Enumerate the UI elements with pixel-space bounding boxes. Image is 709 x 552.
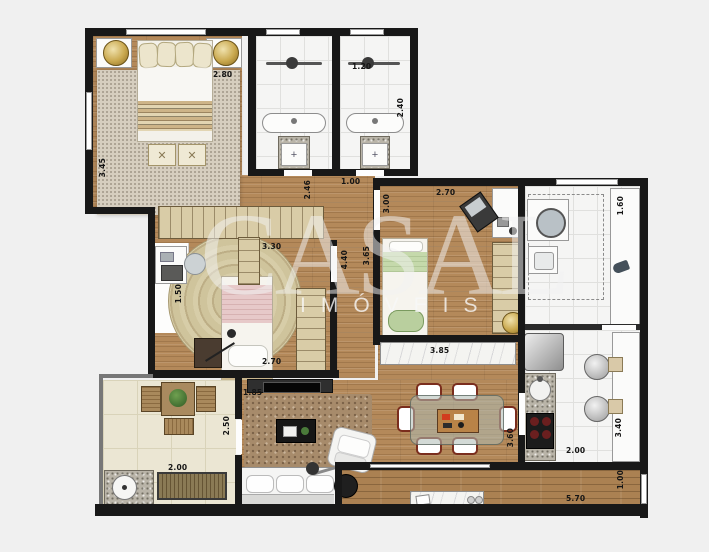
wall-balcony-divider-top bbox=[235, 377, 242, 419]
bedside-table bbox=[194, 338, 222, 368]
window-living-terrace bbox=[370, 464, 490, 468]
bar-counter bbox=[612, 332, 640, 462]
wall-balcony-divider-bottom bbox=[235, 455, 242, 510]
balcony-glass-left bbox=[99, 377, 103, 510]
coffee-table bbox=[276, 419, 316, 443]
dim-terrace-depth: 1.00 bbox=[616, 470, 625, 489]
door-bathroom2 bbox=[356, 170, 384, 176]
wall-bedroom3-bottom bbox=[373, 335, 520, 342]
faucet-icon bbox=[372, 118, 378, 124]
place-setting-icon bbox=[608, 357, 623, 372]
faucet-icon bbox=[291, 118, 297, 124]
tray-item bbox=[458, 422, 464, 428]
burner-icon bbox=[530, 417, 539, 426]
door-balcony bbox=[236, 420, 242, 454]
washer-door-icon bbox=[536, 208, 566, 238]
dim-hall-width: 1.00 bbox=[341, 177, 360, 186]
window-bathroom1 bbox=[266, 29, 300, 35]
bed-blanket bbox=[222, 285, 272, 323]
sofa-pillow bbox=[246, 475, 274, 493]
desk-item bbox=[161, 265, 183, 281]
dim-kitchen-depth: 3.40 bbox=[614, 418, 623, 437]
place-setting-icon bbox=[608, 399, 623, 414]
kitchen-sink bbox=[529, 379, 551, 401]
bar-stool bbox=[584, 396, 610, 422]
magazine-icon bbox=[283, 426, 297, 437]
bed-pillow bbox=[174, 42, 194, 68]
door-bedroom2 bbox=[331, 246, 337, 282]
laundry-sink bbox=[528, 246, 558, 274]
balcony-chair bbox=[141, 386, 161, 412]
dim-bath-width: 1.20 bbox=[352, 62, 371, 71]
terrace-deck bbox=[340, 468, 640, 506]
wall-bedroom2-bottom bbox=[148, 370, 339, 378]
bed-pillow bbox=[156, 42, 176, 68]
sofa-seat bbox=[242, 494, 334, 504]
dim-living-top: 1.85 bbox=[243, 388, 262, 397]
shower-head-icon bbox=[286, 57, 298, 69]
floor-lamp-shade bbox=[306, 462, 319, 475]
wall-bath2-right bbox=[410, 28, 418, 176]
faucet-icon bbox=[537, 376, 543, 382]
dim-bedroom3-width: 2.70 bbox=[436, 188, 455, 197]
cooktop bbox=[526, 413, 554, 449]
wall-bath-bottom bbox=[248, 169, 418, 176]
floor-plan: ✕ ✕ + + bbox=[0, 0, 709, 552]
dim-kitchen-width: 2.00 bbox=[566, 446, 585, 455]
bed-bench: ✕ bbox=[178, 144, 206, 166]
door-kitchen bbox=[519, 393, 525, 435]
dim-bedroom3-left: 3.00 bbox=[382, 194, 391, 213]
dim-bedroom3-right: 3.65 bbox=[362, 246, 371, 265]
dim-terrace-width: 5.70 bbox=[566, 494, 585, 503]
dresser bbox=[238, 237, 260, 285]
bedroom2-wardrobe bbox=[296, 288, 326, 374]
burner-icon bbox=[530, 430, 539, 439]
dim-counter-width: 3.85 bbox=[430, 346, 449, 355]
door-bedroom3 bbox=[374, 190, 380, 230]
wall-bath-divider bbox=[332, 36, 340, 169]
grill-slats bbox=[157, 472, 227, 500]
shower-box: + bbox=[281, 143, 307, 166]
window-service bbox=[556, 179, 618, 185]
wall-bottom bbox=[95, 504, 648, 516]
desk bbox=[155, 246, 187, 284]
door-service bbox=[602, 325, 636, 330]
dining-table-glass bbox=[410, 395, 504, 445]
balcony-bench bbox=[164, 418, 194, 435]
dim-balcony-depth: 2.50 bbox=[222, 416, 231, 435]
bed-pillow bbox=[192, 42, 213, 68]
balcony-glass-top bbox=[99, 374, 153, 378]
door-bathroom1 bbox=[284, 170, 312, 176]
wall-kitchen-bottom bbox=[518, 462, 648, 470]
balcony-chair bbox=[196, 386, 216, 412]
plant-icon bbox=[169, 389, 187, 407]
wall-bath1-left bbox=[248, 28, 256, 176]
burner-icon bbox=[542, 417, 551, 426]
dim-corridor-depth: 4.40 bbox=[340, 250, 349, 269]
plant-icon bbox=[301, 427, 309, 435]
washing-machine bbox=[527, 199, 569, 241]
dim-bath-depth: 2.40 bbox=[396, 98, 405, 117]
hall-wardrobe bbox=[158, 206, 324, 239]
tray-item bbox=[442, 414, 450, 420]
shower-box: + bbox=[362, 143, 388, 166]
tv-icon bbox=[263, 382, 321, 393]
window-terrace-right bbox=[641, 474, 647, 504]
gold-lamp-icon bbox=[213, 40, 239, 66]
desk-item bbox=[497, 217, 509, 227]
gold-lamp-icon bbox=[103, 40, 129, 66]
dim-master-depth: 3.45 bbox=[98, 158, 107, 177]
desk-chair bbox=[184, 253, 206, 275]
dim-nook-width: 1.50 bbox=[174, 284, 183, 303]
lamp-shade-icon bbox=[227, 329, 236, 338]
faucet-icon bbox=[122, 485, 127, 490]
sofa-pillow bbox=[306, 475, 334, 493]
sofa-pillow bbox=[276, 475, 304, 493]
bar-stool bbox=[584, 354, 610, 380]
tray-item bbox=[443, 423, 452, 428]
desk-item bbox=[509, 227, 517, 235]
double-bed bbox=[137, 40, 213, 142]
dim-living-depth: 3.60 bbox=[506, 428, 515, 447]
dim-balcony-width: 2.00 bbox=[168, 463, 187, 472]
bed-blanket bbox=[138, 101, 212, 131]
tray-item bbox=[454, 414, 464, 420]
cup-icon bbox=[475, 496, 483, 504]
fridge bbox=[524, 333, 564, 371]
cup-icon bbox=[467, 496, 475, 504]
laptop-screen bbox=[465, 197, 487, 217]
dim-master-width: 2.80 bbox=[213, 70, 232, 79]
bed-pillow bbox=[389, 241, 423, 252]
serving-tray bbox=[437, 409, 479, 433]
burner-icon bbox=[542, 430, 551, 439]
dim-service-depth: 1.60 bbox=[616, 196, 625, 215]
laundry-basin bbox=[534, 252, 554, 270]
service-counter bbox=[610, 188, 640, 326]
bed-blanket bbox=[383, 252, 427, 272]
wall-bedroom2-left bbox=[148, 207, 155, 377]
window-bathroom2 bbox=[350, 29, 384, 35]
bed-pillow bbox=[138, 42, 159, 68]
window-master-top bbox=[126, 29, 206, 35]
wall-master-step bbox=[85, 207, 155, 214]
wall-bedroom3-top bbox=[373, 178, 525, 186]
bed-pouf bbox=[388, 310, 424, 332]
dim-bedroom2-bottom: 2.70 bbox=[262, 357, 281, 366]
bed-bench: ✕ bbox=[148, 144, 176, 166]
window-master-left bbox=[86, 92, 92, 150]
dim-hall-depth: 2.46 bbox=[303, 180, 312, 199]
desk-item bbox=[160, 252, 174, 262]
dim-bedroom2-width: 3.30 bbox=[262, 242, 281, 251]
bed-sheer bbox=[138, 67, 212, 101]
